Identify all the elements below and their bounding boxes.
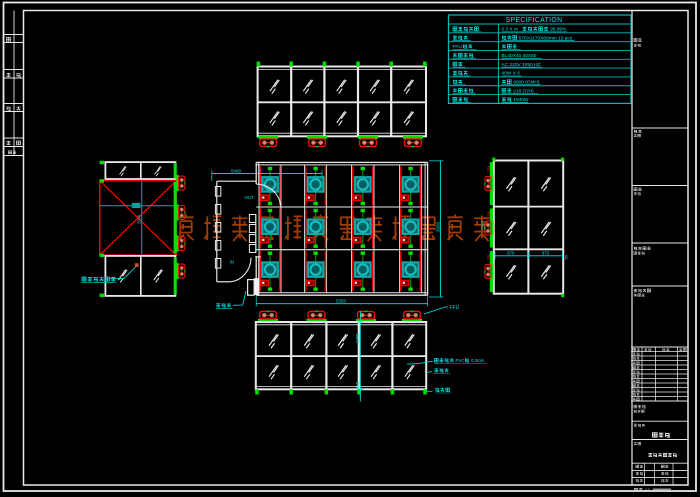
svg-text:IN: IN [230, 259, 234, 264]
svg-text:SPECIFICATION: SPECIFICATION [506, 17, 563, 24]
svg-text:2500: 2500 [137, 214, 142, 224]
svg-text:2350: 2350 [355, 333, 360, 343]
svg-text:750: 750 [487, 211, 491, 217]
svg-text:450: 450 [355, 381, 360, 389]
svg-text:0.3mm: 0.3mm [471, 358, 485, 363]
svg-text:A1: A1 [645, 488, 651, 493]
svg-text:3950: 3950 [435, 221, 440, 232]
svg-text:2350: 2350 [481, 220, 486, 230]
svg-text:750: 750 [487, 166, 491, 172]
svg-text:OUT: OUT [245, 195, 255, 200]
svg-text:970: 970 [507, 251, 515, 256]
svg-text:5350: 5350 [336, 299, 347, 304]
svg-text:5400: 5400 [231, 168, 242, 173]
svg-text:750: 750 [487, 254, 491, 260]
svg-text:50: 50 [565, 255, 569, 259]
svg-text:FFU: FFU [450, 305, 460, 311]
svg-text:PVC: PVC [456, 358, 465, 363]
svg-text:970: 970 [542, 251, 550, 256]
